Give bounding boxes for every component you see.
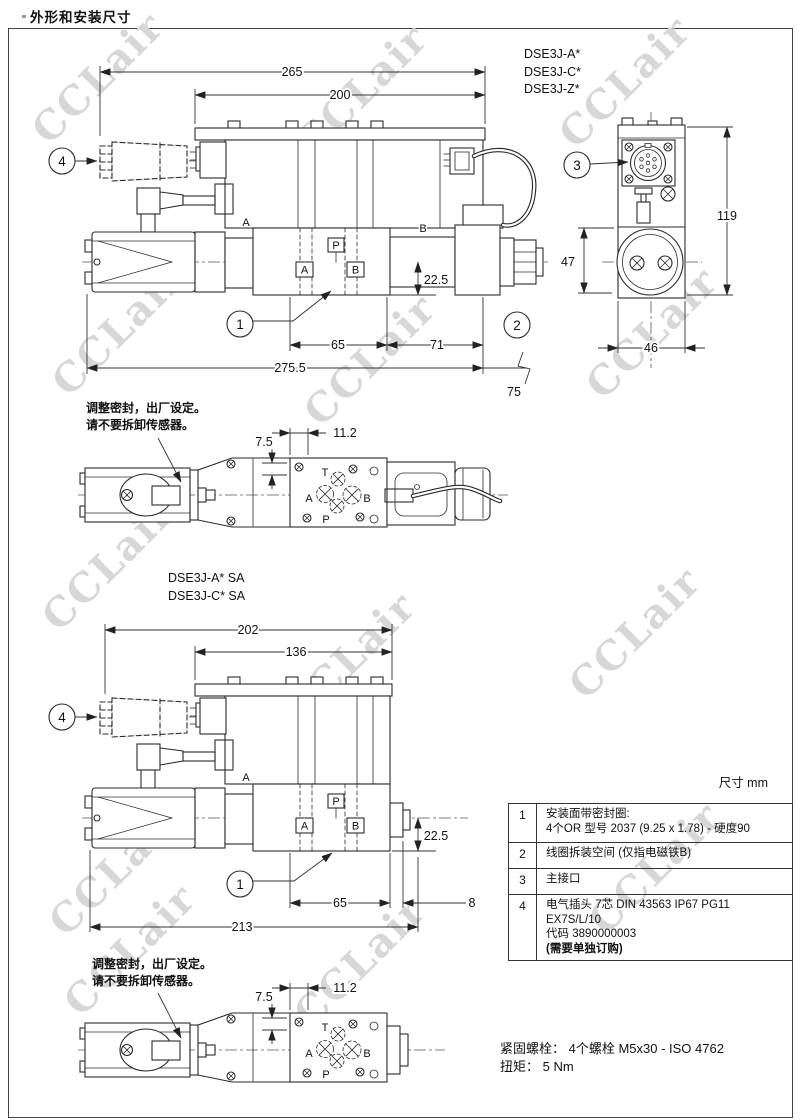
port-a-label: A xyxy=(305,493,313,505)
port-p-box-label: P xyxy=(332,796,339,808)
port-b-box-label: B xyxy=(352,265,359,277)
callout-4-label: 4 xyxy=(58,154,66,169)
model-label: DSE3J-C* SA xyxy=(168,588,245,606)
callout-2: 2 xyxy=(504,312,530,338)
dim-46: 46 xyxy=(644,341,658,355)
row-number: 4 xyxy=(509,895,537,960)
dim-11-2: 11.2 xyxy=(333,426,356,440)
port-a-box-label: A xyxy=(301,821,309,833)
callout-2-label: 2 xyxy=(513,318,521,333)
solenoid-a-label: A xyxy=(242,217,250,229)
sensor-fitting xyxy=(137,740,233,788)
row-number: 1 xyxy=(509,804,537,842)
seal-note-1: 调整密封，出厂设定。 请不要拆卸传感器。 xyxy=(86,400,206,434)
note-line: 调整密封，出厂设定。 xyxy=(86,400,206,417)
notes-table: 1 安装面带密封圈: 4个OR 型号 2037 (9.25 x 1.78) - … xyxy=(508,803,793,961)
row-text: 代码 3890000003 xyxy=(546,927,788,942)
note-line: 请不要拆卸传感器。 xyxy=(92,973,212,990)
end-plug xyxy=(387,1026,408,1074)
table-row: 4 电气插头 7芯 DIN 43563 IP67 PG11 EX7S/L/10 … xyxy=(509,894,792,960)
port-b-label: B xyxy=(363,1048,370,1060)
port-b-box-label: B xyxy=(352,821,359,833)
side-view-drawing-1: 4 xyxy=(49,65,548,399)
main-connector xyxy=(622,140,675,186)
electronics-housing xyxy=(190,140,483,228)
model-list-1: DSE3J-A* DSE3J-C* DSE3J-Z* xyxy=(524,46,581,99)
port-t-label: T xyxy=(322,1022,329,1034)
table-row: 3 主接口 xyxy=(509,868,792,894)
solenoid-b-label: B xyxy=(419,223,426,235)
dim-200: 200 xyxy=(330,88,351,102)
callout-1-label: 1 xyxy=(236,877,244,892)
side-view-drawing-2-sa: 4 xyxy=(49,623,476,934)
callout-4-label: 4 xyxy=(58,710,66,725)
solenoid-b-top xyxy=(385,462,500,525)
solenoid-a-coil xyxy=(85,232,253,292)
fastening-line: 扭矩： 5 Nm xyxy=(500,1058,724,1076)
dim-136: 136 xyxy=(286,645,307,659)
callout-1: 1 xyxy=(227,853,332,897)
seal-note-2: 调整密封，出厂设定。 请不要拆卸传感器。 xyxy=(92,956,212,990)
dim-275-5: 275.5 xyxy=(274,361,305,375)
dim-202: 202 xyxy=(238,623,259,637)
units-label: 尺寸 mm xyxy=(508,772,768,791)
top-view-drawing-2-sa: T A B P 11.2 7.5 xyxy=(78,981,445,1082)
row-text: 主接口 xyxy=(546,872,788,887)
row-text: 线圈拆装空间 (仅指电磁铁B) xyxy=(546,846,788,861)
dim-265: 265 xyxy=(282,65,303,79)
dim-119: 119 xyxy=(717,209,737,223)
sensor-fitting xyxy=(137,184,233,232)
fastening-line: 紧固螺栓： 4个螺栓 M5x30 - ISO 4762 xyxy=(500,1040,724,1058)
dim-11-2: 11.2 xyxy=(333,981,356,995)
table-row: 2 线圈拆装空间 (仅指电磁铁B) xyxy=(509,842,792,868)
note-line: 调整密封，出厂设定。 xyxy=(92,956,212,973)
mounting-plate xyxy=(195,677,392,696)
port-a-label: A xyxy=(305,1048,313,1060)
dim-7-5: 7.5 xyxy=(255,435,272,449)
dim-22-5: 22.5 xyxy=(424,273,448,287)
dim-213: 213 xyxy=(232,920,253,934)
fastening-note: 紧固螺栓： 4个螺栓 M5x30 - ISO 4762 扭矩： 5 Nm xyxy=(500,1040,724,1075)
solenoid-a-coil xyxy=(85,788,253,848)
row-text-bold: (需要单独订购) xyxy=(546,942,788,957)
solenoid-b xyxy=(455,205,543,295)
callout-1-label: 1 xyxy=(236,317,244,332)
callout-3-label: 3 xyxy=(573,158,581,173)
top-view-drawing-1: T A B P 11.2 xyxy=(78,426,508,527)
dim-22-5: 22.5 xyxy=(424,829,448,843)
model-label: DSE3J-A* xyxy=(524,46,581,64)
row-text: 安装面带密封圈: xyxy=(546,807,788,822)
port-plate: T A B P xyxy=(290,458,387,527)
note-line: 请不要拆卸传感器。 xyxy=(86,417,206,434)
dim-7-5: 7.5 xyxy=(255,990,272,1004)
mounting-plate xyxy=(195,121,485,140)
port-t-label: T xyxy=(322,467,329,479)
port-plate: T A B P xyxy=(290,1013,387,1082)
row-number: 2 xyxy=(509,843,537,868)
title-tick xyxy=(22,15,26,18)
callout-4: 4 xyxy=(49,148,97,174)
dim-71: 71 xyxy=(430,338,444,352)
callout-4: 4 xyxy=(49,704,97,730)
electrical-plug-outline xyxy=(100,142,187,181)
model-label: DSE3J-C* xyxy=(524,64,581,82)
model-label: DSE3J-Z* xyxy=(524,81,581,99)
end-view-drawing: 119 47 46 3 xyxy=(561,112,737,368)
table-row: 1 安装面带密封圈: 4个OR 型号 2037 (9.25 x 1.78) - … xyxy=(509,804,792,842)
model-list-2: DSE3J-A* SA DSE3J-C* SA xyxy=(168,570,245,605)
electrical-plug-outline xyxy=(100,698,187,737)
port-p-label: P xyxy=(322,1069,329,1081)
dim-65: 65 xyxy=(331,338,345,352)
model-label: DSE3J-A* SA xyxy=(168,570,245,588)
datasheet-page: 外形和安装尺寸 CCLair CCLair CCLair CCLair CCLa… xyxy=(0,0,800,1120)
dim-75: 75 xyxy=(507,385,521,399)
port-a-box-label: A xyxy=(301,265,309,277)
row-text: EX7S/L/10 xyxy=(546,913,788,928)
dim-8: 8 xyxy=(469,896,476,910)
dim-65: 65 xyxy=(333,896,347,910)
page-title: 外形和安装尺寸 xyxy=(30,6,132,26)
row-text: 电气插头 7芯 DIN 43563 IP67 PG11 xyxy=(546,898,788,913)
row-number: 3 xyxy=(509,869,537,894)
dim-47: 47 xyxy=(561,255,575,269)
row-text: 4个OR 型号 2037 (9.25 x 1.78) - 硬度90 xyxy=(546,822,788,837)
coil-face xyxy=(617,229,683,295)
port-p-box-label: P xyxy=(332,240,339,252)
port-p-label: P xyxy=(322,514,329,526)
port-b-label: B xyxy=(363,493,370,505)
valve-body: A B P A xyxy=(242,772,410,851)
callout-1: 1 xyxy=(227,291,331,337)
solenoid-a-label: A xyxy=(242,772,250,784)
